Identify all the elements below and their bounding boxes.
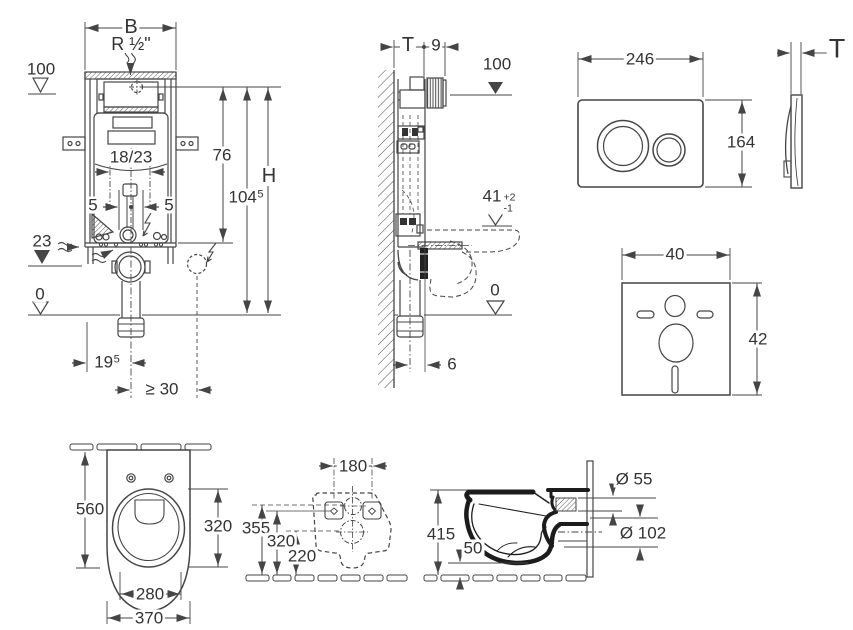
wc-pan-dashed-outline xyxy=(427,230,520,297)
dim-320-plan-label: 320 xyxy=(202,518,234,535)
dim-220-label: 220 xyxy=(286,548,318,565)
floor-tiles xyxy=(424,575,586,581)
dim-164-label: 164 xyxy=(725,134,757,151)
large-flush-button xyxy=(598,121,649,172)
wall-tiles xyxy=(70,444,211,450)
flush-plate-drawing xyxy=(578,42,828,188)
dim-76-label: 76 xyxy=(211,147,234,164)
dim-370-label: 370 xyxy=(133,610,165,627)
electrical-connection-icon xyxy=(188,255,207,274)
dim-5-right-label: 5 xyxy=(162,197,175,214)
dim-415-label: 415 xyxy=(425,526,457,543)
dim-50-label: 50 xyxy=(462,540,485,557)
wall-panel xyxy=(587,461,593,577)
level-100-side-label: 100 xyxy=(481,56,513,73)
outlet-gasket xyxy=(420,248,428,279)
dim-246-label: 246 xyxy=(624,51,656,68)
dim-min-30-label: ≥ 30 xyxy=(144,381,181,398)
lightning-bolt-icon xyxy=(207,243,216,262)
dim-6-label: 6 xyxy=(445,356,458,373)
dim-18-23-label: 18/23 xyxy=(108,149,155,166)
mat-outline xyxy=(622,283,730,395)
floor-tiles xyxy=(246,575,407,581)
lightning-bolt-icon xyxy=(143,213,151,236)
dim-104-label: 1045 xyxy=(227,189,266,206)
front-view-drawing xyxy=(28,22,281,398)
wall-hatch xyxy=(378,70,394,388)
dim-h-label: H xyxy=(260,166,278,186)
dim-dia-102-label: Ø 102 xyxy=(618,525,668,542)
dim-560-label: 560 xyxy=(74,501,106,518)
dim-40-label: 40 xyxy=(664,246,687,263)
dim-5-left-label: 5 xyxy=(86,197,99,214)
level-open-triangle xyxy=(33,78,48,92)
level-23-label: 23 xyxy=(31,233,54,250)
dim-280-label: 280 xyxy=(134,586,166,603)
level-filled-triangle xyxy=(34,250,50,264)
dim-supply-label: R ½" xyxy=(109,35,152,53)
dim-9-label: 9 xyxy=(429,37,442,54)
level-41-label: 41+2-1 xyxy=(481,187,518,214)
level-100-label: 100 xyxy=(25,61,57,78)
dim-180-label: 180 xyxy=(337,458,369,475)
level-0-label: 0 xyxy=(33,286,46,303)
insulation-mat-drawing xyxy=(622,248,762,395)
dim-dia-55-label: Ø 55 xyxy=(614,471,655,488)
dim-t-label: T xyxy=(400,35,416,55)
dim-19-label: 195 xyxy=(92,354,122,371)
small-flush-button xyxy=(653,134,685,166)
dim-plate-t-label: T xyxy=(827,36,848,63)
level-0-side-label: 0 xyxy=(488,282,501,299)
technical-drawing-sheet: B R ½" 100 18/23 76 1045 H 5 5 23 0 195 … xyxy=(0,0,853,630)
dim-42-label: 42 xyxy=(747,331,770,348)
flush-pipe-section xyxy=(556,498,576,511)
